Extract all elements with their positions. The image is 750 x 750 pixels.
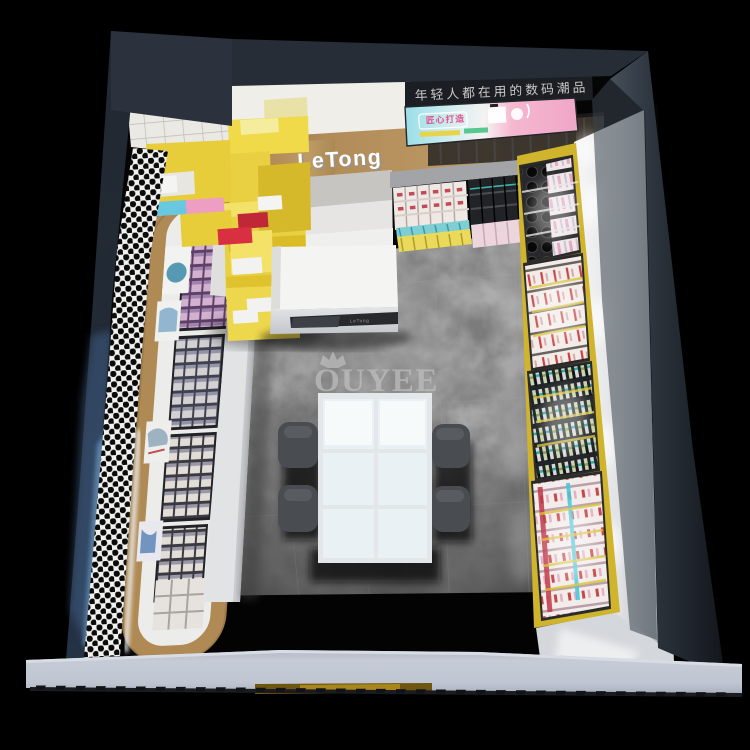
- svg-text:LeTong: LeTong: [350, 318, 370, 324]
- svg-text:匠心打造: 匠心打造: [426, 112, 466, 125]
